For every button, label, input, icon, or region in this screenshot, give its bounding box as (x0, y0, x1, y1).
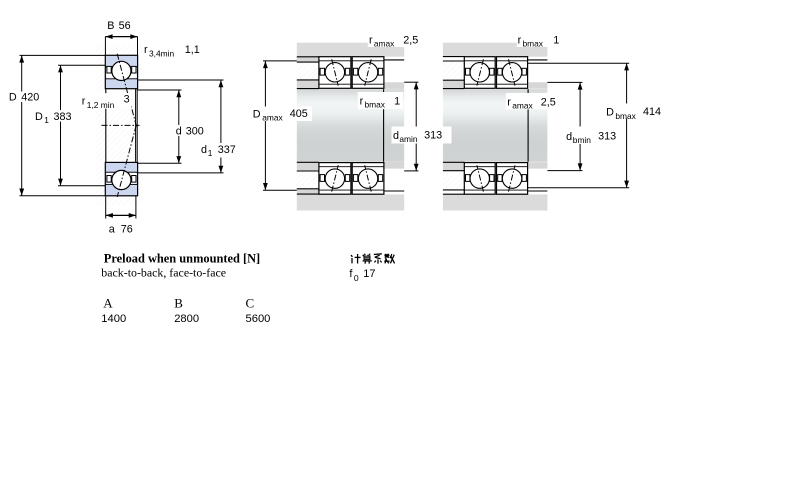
svg-text:amax: amax (374, 39, 395, 49)
svg-text:56: 56 (119, 20, 131, 32)
svg-text:a: a (109, 223, 115, 235)
svg-text:Preload when unmounted [N]: Preload when unmounted [N] (104, 252, 260, 266)
svg-text:amax: amax (512, 101, 533, 111)
svg-text:1: 1 (44, 115, 49, 125)
svg-text:2,5: 2,5 (541, 96, 556, 108)
svg-text:313: 313 (598, 131, 616, 143)
svg-text:414: 414 (643, 106, 661, 118)
svg-text:C: C (246, 295, 255, 310)
svg-text:B: B (174, 295, 183, 310)
svg-text:A: A (103, 295, 113, 310)
svg-text:1: 1 (394, 95, 400, 107)
svg-text:1: 1 (208, 148, 213, 158)
svg-text:D: D (606, 107, 614, 119)
svg-text:r: r (82, 96, 86, 108)
svg-text:r: r (507, 96, 511, 108)
svg-text:1: 1 (553, 34, 559, 46)
svg-text:313: 313 (424, 129, 442, 141)
svg-text:405: 405 (290, 108, 308, 120)
svg-text:B: B (107, 20, 114, 32)
svg-text:bmin: bmin (573, 135, 591, 145)
svg-text:0: 0 (354, 273, 359, 283)
svg-text:amax: amax (262, 113, 283, 123)
svg-text:r: r (144, 44, 148, 56)
svg-text:D: D (253, 108, 261, 120)
svg-text:f: f (349, 268, 353, 280)
svg-text:amin: amin (399, 134, 417, 144)
svg-text:D: D (35, 111, 43, 123)
svg-text:420: 420 (21, 91, 39, 103)
svg-text:2,5: 2,5 (403, 34, 418, 46)
svg-text:d: d (201, 144, 207, 156)
svg-text:bmax: bmax (523, 39, 544, 49)
svg-text:17: 17 (363, 268, 375, 280)
svg-text:3,4min: 3,4min (149, 49, 174, 59)
svg-text:337: 337 (218, 144, 236, 156)
svg-text:bmax: bmax (615, 111, 636, 121)
svg-text:1,1: 1,1 (185, 44, 200, 56)
svg-text:1400: 1400 (101, 313, 126, 325)
svg-text:3: 3 (124, 94, 130, 106)
svg-text:d: d (393, 130, 399, 142)
svg-text:back-to-back, face-to-face: back-to-back, face-to-face (101, 266, 226, 280)
svg-text:bmax: bmax (365, 100, 386, 110)
svg-text:D: D (9, 91, 17, 103)
svg-text:r: r (369, 34, 373, 46)
svg-text:r: r (360, 95, 364, 107)
svg-text:d: d (566, 131, 572, 143)
svg-text:5600: 5600 (246, 313, 271, 325)
svg-text:d: d (176, 126, 182, 138)
svg-text:300: 300 (186, 126, 204, 138)
svg-text:76: 76 (121, 223, 133, 235)
svg-text:2800: 2800 (174, 313, 199, 325)
svg-text:r: r (518, 34, 522, 46)
svg-text:1,2 min: 1,2 min (87, 100, 115, 110)
svg-text:383: 383 (54, 111, 72, 123)
